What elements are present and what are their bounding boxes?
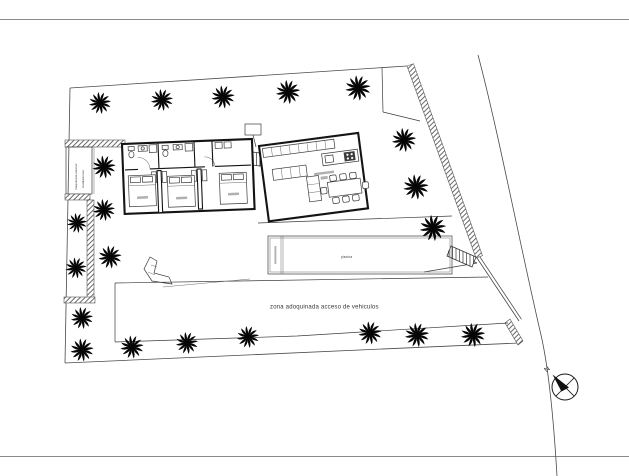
bed-2 (167, 175, 195, 207)
room-illegible-label (176, 197, 187, 200)
room-illegible-label (228, 193, 239, 196)
site-plan-sheet: maquinaria exterior instalaciones zona a… (0, 0, 629, 476)
machinery-room (66, 147, 92, 194)
north-label: N (543, 365, 551, 374)
road-curve-line (478, 55, 557, 476)
palm-tree-icon (276, 80, 300, 104)
machinery-room-label-2: instalaciones (81, 170, 85, 188)
shower (149, 145, 157, 153)
palm-tree-icon (151, 89, 173, 111)
machinery-room-label-1: maquinaria exterior (74, 164, 78, 190)
site-plan-drawing: maquinaria exterior instalaciones zona a… (0, 0, 629, 476)
palm-tree-icon (93, 199, 115, 221)
boundary-steps (447, 246, 476, 267)
dining-chair (352, 194, 359, 201)
enclosure-hatch-top (65, 140, 125, 147)
toilet-tank (162, 145, 168, 149)
palm-tree-icon (211, 85, 234, 108)
partition-wall (157, 171, 163, 213)
pool-strip-illegible-label (275, 246, 277, 264)
palm-tree-icon (71, 307, 93, 329)
bed-1 (128, 175, 156, 207)
cooktop (344, 151, 356, 161)
sink (141, 147, 144, 150)
palm-tree-icon (403, 174, 428, 199)
dining-chair (349, 172, 356, 179)
wardrobe (202, 170, 207, 181)
building-left-wing (122, 139, 255, 214)
north-arrow-icon: N (543, 365, 578, 400)
dining-chair (332, 197, 339, 204)
shower (185, 143, 193, 151)
appliance (224, 142, 231, 148)
pool-label: piscina (341, 255, 352, 259)
appliance (215, 142, 222, 148)
island-sink (325, 155, 334, 163)
palm-tree-icon (67, 213, 87, 233)
palm-tree-icon (405, 323, 429, 347)
palm-tree-icon (176, 332, 198, 354)
partition-wall (197, 169, 203, 209)
pool (268, 236, 452, 274)
palm-tree-icon (392, 128, 416, 152)
dining-chair (342, 196, 349, 203)
palm-tree-icon (358, 321, 381, 344)
building-right-wing (259, 132, 372, 221)
enclosure-hatch-vertical (87, 200, 94, 298)
terrace-edges (382, 68, 477, 272)
palm-tree-icon (66, 258, 87, 279)
dining-chair (320, 187, 327, 194)
room-illegible-label (137, 196, 148, 199)
paved-zone-label: zona adoquinada acceso de vehiculos (270, 305, 379, 311)
sink (176, 145, 179, 148)
toilet-tank (128, 147, 134, 151)
palm-tree-icon (70, 338, 93, 361)
toilet (129, 151, 134, 158)
bed-3 (219, 172, 247, 204)
palm-tree-icon (120, 335, 143, 358)
boundary-hatch-right (407, 64, 483, 258)
dining-chair (362, 182, 369, 189)
palm-tree-icon (237, 326, 259, 348)
palm-tree-icon (98, 245, 121, 268)
dining-chair (339, 173, 346, 180)
palm-tree-icon (420, 215, 446, 241)
palm-tree-icon (461, 323, 485, 347)
palm-tree-icon (92, 155, 115, 178)
palm-tree-icon (89, 92, 111, 114)
dining-chair (329, 175, 336, 182)
paved-zone: zona adoquinada acceso de vehiculos (115, 277, 508, 342)
enclosure-hatch-mid (65, 194, 90, 200)
toilet (163, 150, 168, 157)
exterior-stair (144, 257, 250, 287)
enclosure-hatch-bottom (64, 297, 95, 303)
palm-tree-icon (345, 75, 370, 100)
wardrobe (162, 171, 167, 182)
